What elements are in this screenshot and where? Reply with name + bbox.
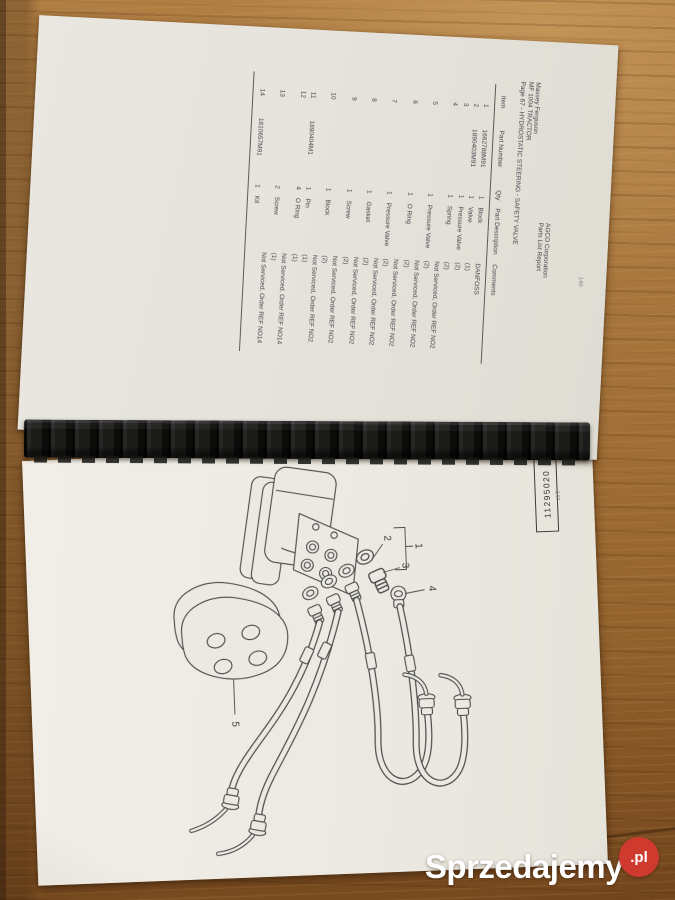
cell-comment: (2): [359, 257, 370, 265]
cell-item: 5: [429, 81, 440, 106]
watermark-text: Sprzedajemy: [425, 847, 623, 887]
cell-description: Block: [474, 207, 485, 223]
watermark-pl-badge: .pl: [619, 837, 659, 877]
col-item: Item: [497, 84, 508, 109]
cell-description: O Ring: [402, 203, 413, 224]
cell-comment: (2): [451, 262, 462, 270]
cell-part-number: 1890403M91: [467, 129, 479, 167]
cell-item: 1: [480, 83, 491, 108]
callout-4: 4: [426, 585, 437, 591]
cell-description: Pin: [301, 198, 312, 208]
cell-item: 7: [388, 79, 399, 104]
col-part-description: Part Description: [489, 208, 502, 255]
cell-description: Valve: [464, 207, 475, 223]
cell-item: 8: [368, 77, 379, 102]
cell-comment: (2): [339, 256, 350, 264]
diagram-page: 1 2 3 4 5 11295020 147: [22, 439, 608, 886]
cell-description: O Ring: [290, 198, 301, 219]
drawing-number: 11295020: [540, 470, 552, 519]
cell-qty: 1: [363, 171, 374, 194]
pump-body: [235, 463, 361, 600]
cell-comment: DANFOSS: [470, 263, 482, 295]
item3-fitting: [368, 567, 392, 594]
cell-qty: 1: [465, 177, 476, 200]
hydraulic-diagram-svg: 1 2 3 4 5: [47, 448, 502, 865]
cell-part-number: 1662788M91: [477, 129, 489, 167]
cell-comment: (2): [441, 261, 452, 269]
cell-item: 4: [449, 82, 460, 107]
site-watermark: Sprzedajemy .pl: [425, 847, 659, 887]
cell-comment: (2): [319, 255, 330, 263]
photo-scene: 146 AGCO Corporation Parts List Report M…: [0, 0, 675, 900]
cell-qty: 1: [343, 170, 354, 193]
cell-qty: 1: [455, 176, 466, 199]
hose-elbows: [186, 672, 477, 855]
parts-list-print-sheet: 146 AGCO Corporation Parts List Report M…: [20, 30, 599, 444]
page-number-top: 146: [577, 277, 584, 287]
comb-binding: [24, 420, 590, 461]
cell-part-number: 1890404M1: [304, 120, 316, 155]
cell-comment: (1): [268, 252, 279, 260]
cell-part-number: 1810657M91: [253, 118, 265, 156]
cell-qty: 2: [272, 167, 283, 190]
cell-qty: 1: [251, 165, 262, 188]
cell-qty: 1: [322, 169, 333, 192]
cell-item: 9: [348, 76, 359, 101]
cell-item: 13: [276, 73, 287, 98]
cell-comment: (1): [298, 254, 309, 262]
cell-comment: (2): [380, 258, 391, 266]
parts-list-page: 146 AGCO Corporation Parts List Report M…: [18, 15, 619, 460]
cell-description: Screw: [270, 196, 281, 215]
cell-description: Kit: [250, 195, 261, 203]
cell-qty: 1: [302, 168, 313, 191]
cell-item: 10: [327, 75, 338, 100]
cell-qty: 1: [444, 176, 455, 199]
report-header-left: Massey Ferguson MF 1004 TRACTOR Page 67 …: [511, 81, 542, 245]
callout-2: 2: [381, 535, 392, 541]
callout-5: 5: [229, 721, 240, 727]
cell-qty: 1: [475, 177, 486, 200]
cell-item: 3: [459, 82, 470, 107]
cell-item: 11: [307, 74, 318, 99]
cell-item: 12: [297, 74, 308, 99]
callout-3: 3: [399, 562, 410, 568]
cell-description: Spring: [443, 206, 454, 225]
cell-qty: 1: [404, 173, 415, 196]
cell-description: Screw: [341, 200, 352, 219]
cell-comment: (1): [288, 253, 299, 261]
cell-comment: (2): [400, 259, 411, 267]
cell-qty: 4: [292, 168, 303, 191]
cell-comment: (1): [461, 263, 472, 271]
table-rows: 11662788M911BlockDANFOSS21890403M911Valv…: [235, 41, 493, 438]
col-comments: Comments: [487, 264, 499, 296]
cell-item: 2: [470, 83, 481, 108]
page-number-bottom: 147: [554, 490, 560, 500]
cell-item: 14: [256, 72, 267, 97]
col-qty: Qty: [492, 178, 503, 201]
cell-qty: 1: [424, 175, 435, 198]
cell-description: Block: [321, 199, 332, 215]
col-part-number: Part Number: [494, 130, 506, 167]
flange-block: [173, 580, 290, 681]
cell-comment: (2): [420, 260, 431, 268]
cell-description: Gasket: [362, 201, 373, 222]
report-header-right: AGCO Corporation Parts List Report: [533, 222, 551, 278]
cell-qty: 1: [383, 172, 394, 195]
callout-1: 1: [412, 543, 423, 549]
cell-item: 6: [409, 80, 420, 105]
